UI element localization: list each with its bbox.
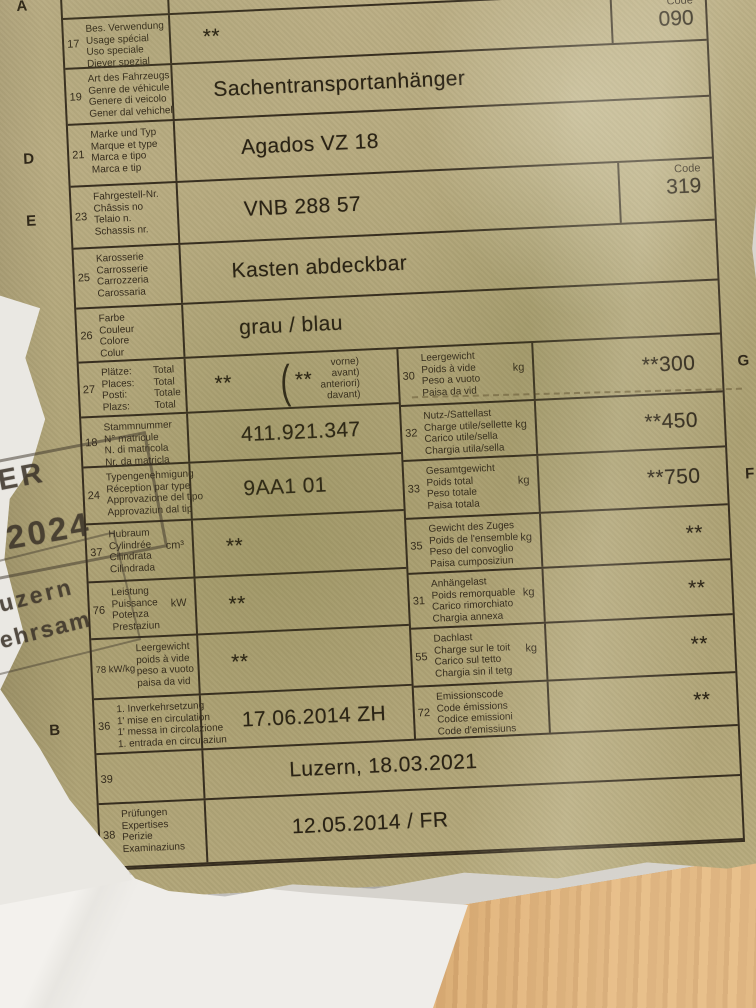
- field-value: **300: [641, 352, 695, 378]
- margin-letter-d: D: [23, 150, 35, 167]
- field-number: 72: [418, 707, 431, 720]
- field-number: 33: [407, 484, 420, 497]
- field-value-cell: **: [541, 505, 730, 566]
- unit-label: kW: [170, 597, 186, 610]
- field-labels: Fahrgestell-Nr.Châssis noTelaio n.Schass…: [93, 188, 178, 238]
- margin-letter-e: E: [26, 212, 37, 229]
- field-label-cell: 19Art des FahrzeugsGenre de véhiculeGene…: [65, 65, 174, 124]
- field-label-cell: 72EmissionscodeCode émissionsCodice emis…: [414, 682, 551, 739]
- field-value: Luzern, 18.03.2021: [289, 750, 478, 783]
- field-value: 12.05.2014 / FR: [291, 808, 449, 839]
- field-labels: 1. Inverkehrsetzung1' mise en circulatio…: [116, 700, 201, 750]
- field-labels: Leergewichtpoids à videpeso a vuotopaisa…: [135, 641, 198, 690]
- field-value: grau / blau: [239, 312, 344, 341]
- unit-label: kg: [523, 587, 535, 600]
- unit-label: kg: [518, 475, 530, 488]
- field-labels: PrüfungenExpertisesPerizieExaminaziuns: [121, 805, 206, 855]
- field-number: 23: [75, 211, 88, 224]
- field-value: **750: [647, 465, 701, 491]
- field-label: Total: [154, 399, 181, 412]
- field-value: **: [214, 371, 232, 396]
- field-label-cell: 33GesamtgewichtPoids totalPeso totalePai…: [403, 456, 540, 518]
- field-number: 15: [65, 0, 78, 1]
- field-label-cell: 17Bes. VerwendungUsage spécialUso specia…: [63, 15, 172, 68]
- field-number: 27: [83, 384, 96, 397]
- split-section: 27Plätze:Places:Posti:Plazs:TotalTotalTo…: [79, 334, 738, 755]
- unit-label: kg: [525, 643, 537, 656]
- field-label-cell: 32Nutz-/SattellastCharge utile/selletteC…: [401, 401, 538, 460]
- field-value: **: [693, 688, 711, 713]
- field-label-cell: 55DachlastCharge sur le toitCarico sul t…: [411, 624, 548, 686]
- unit-label: cm³: [165, 539, 184, 552]
- field-value-cell: 9AA1 01: [190, 454, 403, 519]
- code-cell: Code319: [617, 159, 715, 223]
- field-labels-total: TotalTotalTotaleTotal: [153, 364, 182, 412]
- field-value: 411.921.347: [241, 418, 362, 447]
- unit-label: kg: [520, 532, 532, 545]
- field-value-cell: **(**vorne)avant)anteriori)davant): [186, 349, 399, 412]
- field-value: **: [231, 650, 249, 675]
- field-label-cell: 25KarosserieCarrosserieCarrozzeriaCaross…: [73, 245, 183, 308]
- margin-letter-b: B: [49, 722, 61, 739]
- field-number: 31: [413, 595, 426, 608]
- field-labels: KarosserieCarrosserieCarrozzeriaCarossar…: [96, 250, 181, 300]
- field-labels: Marke und TypMarque et typeMarca e tipoM…: [90, 126, 175, 176]
- registration-table: A15TargaNumer17Bes. VerwendungUsage spéc…: [59, 0, 745, 871]
- field-labels: Art des FahrzeugsGenre de véhiculeGenere…: [88, 70, 173, 120]
- field-value: **: [688, 576, 706, 601]
- margin-letter-f: F: [745, 465, 755, 482]
- field-number: 32: [405, 427, 418, 440]
- front-label: davant): [321, 388, 361, 401]
- front-seat-labels: vorne)avant)anteriori)davant): [319, 355, 360, 401]
- field-label-cell: 27Plätze:Places:Posti:Plazs:TotalTotalTo…: [79, 359, 188, 417]
- margin-letter-g: G: [737, 352, 749, 370]
- field-number: 36: [98, 721, 111, 734]
- field-value: **450: [644, 408, 698, 434]
- field-label-cell: 26FarbeCouleurColoreColur: [76, 305, 185, 362]
- field-label-cell: 21Marke und TypMarque et typeMarca e tip…: [68, 121, 178, 186]
- unit-label: kg: [512, 362, 524, 375]
- field-label: Totale: [154, 387, 181, 400]
- field-value-cell: 17.06.2014 ZH: [201, 686, 414, 749]
- field-labels: AnhängelastPoids remorquableCarico rimor…: [431, 574, 544, 625]
- field-number: 35: [410, 540, 423, 553]
- field-label-cell: 35Gewicht des ZugesPoids de l'ensemblePe…: [406, 514, 543, 573]
- field-number: 30: [402, 371, 415, 384]
- unit-label: kg: [515, 419, 527, 432]
- field-label-cell: 23Fahrgestell-Nr.Châssis noTelaio n.Scha…: [71, 183, 181, 248]
- field-value: **: [202, 25, 220, 50]
- field-labels: EmissionscodeCode émissionsCodice emissi…: [436, 687, 549, 738]
- field-labels: Nutz-/SattellastCharge utile/selletteCar…: [423, 406, 536, 457]
- brace-glyph: (: [279, 354, 291, 408]
- field-number: 26: [80, 330, 93, 343]
- field-number: 55: [415, 651, 428, 664]
- field-value-cell: **450: [536, 392, 725, 453]
- field-label-cell: 361. Inverkehrsetzung1' mise en circulat…: [94, 695, 203, 753]
- field-value-cell: **: [546, 615, 735, 679]
- field-label-cell: 39: [96, 750, 205, 803]
- field-value-cell: **: [198, 626, 411, 694]
- field-value-cell: **: [193, 511, 406, 577]
- code-value: 319: [666, 174, 702, 200]
- field-labels: Gewicht des ZugesPoids de l'ensemblePeso…: [428, 519, 541, 570]
- field-number: 21: [72, 149, 85, 162]
- field-value: 17.06.2014 ZH: [241, 702, 386, 733]
- field-label: paisa da vid: [137, 675, 198, 689]
- field-number: 39: [100, 774, 113, 787]
- field-number: 19: [69, 91, 82, 104]
- field-value-cell: **750: [538, 447, 727, 511]
- field-labels: Bes. VerwendungUsage spécialUso speciale…: [85, 20, 170, 70]
- front-seats-value: **: [295, 368, 313, 393]
- field-value: **: [226, 534, 244, 559]
- field-value: VNB 288 57: [243, 193, 361, 222]
- field-value: Agados VZ 18: [241, 130, 380, 160]
- field-value-cell: **: [543, 560, 732, 621]
- field-labels: FarbeCouleurColoreColur: [98, 310, 183, 360]
- field-value-cell: **: [196, 569, 409, 634]
- field-number: 38: [103, 829, 116, 842]
- code-value: 090: [658, 6, 694, 32]
- photo-scene: A15TargaNumer17Bes. VerwendungUsage spéc…: [0, 0, 756, 1008]
- field-value-cell: **: [549, 673, 738, 732]
- code-cell: Code090: [609, 0, 706, 43]
- front-seats-group: (**vorne)avant)anteriori)davant): [277, 350, 361, 408]
- margin-letter-a: A: [16, 0, 28, 15]
- field-value: 9AA1 01: [243, 473, 327, 501]
- field-value: Kasten abdeckbar: [231, 252, 408, 284]
- field-label-cell: 31AnhängelastPoids remorquableCarico rim…: [409, 569, 546, 628]
- field-value: **: [690, 632, 708, 657]
- field-value-cell: 411.921.347: [188, 404, 401, 462]
- field-number: 17: [67, 38, 80, 51]
- field-value: **: [228, 592, 246, 617]
- field-value: **: [685, 521, 703, 546]
- field-number: 78 kW/kg: [95, 664, 135, 676]
- field-value: Sachentransportanhänger: [213, 67, 466, 102]
- field-number: 25: [78, 272, 91, 285]
